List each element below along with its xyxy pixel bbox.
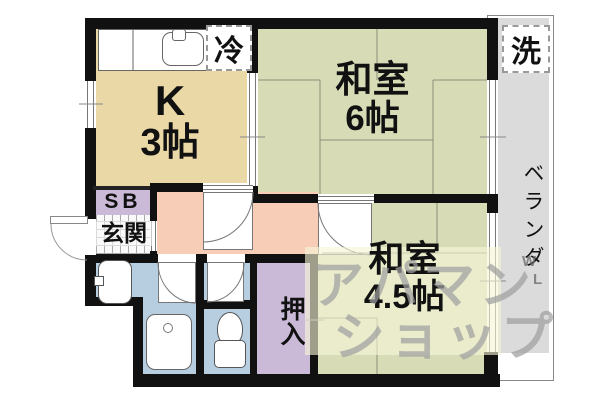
washitsu6-label: 和室 6帖	[275, 60, 470, 138]
floor-plan: 冷 洗	[0, 0, 600, 400]
faucet-icon	[172, 29, 186, 41]
fusuma-kitchen6	[247, 73, 258, 186]
washitsu6-name: 和室	[275, 60, 470, 100]
shoebox-label: SB	[96, 191, 150, 214]
entrance-door-leaf	[50, 216, 88, 224]
wall-left-2	[85, 128, 96, 220]
opening-6-to-45	[318, 194, 374, 203]
washer-label: 洗	[511, 27, 541, 71]
wall-6-bottom-a	[258, 194, 318, 203]
watermark-line2: ショップ	[333, 295, 557, 370]
entrance-door-arc	[51, 224, 87, 260]
refrigerator-label: 冷	[214, 26, 244, 70]
door-hall	[203, 192, 253, 250]
wall-toilet-oshiire	[250, 254, 257, 374]
kitchen-label-size: 3帖	[100, 123, 240, 164]
washer-box: 洗	[502, 25, 550, 73]
wall-6-bottom-b	[374, 194, 498, 203]
kitchen-label-k: K	[100, 78, 240, 123]
window-kitchen-left	[85, 81, 96, 128]
kitchen-label: K 3帖	[100, 78, 240, 164]
outside-notch	[85, 306, 133, 376]
wall-bottom	[133, 374, 500, 387]
wall-kitchen-bottom-a	[150, 183, 203, 192]
bathtub-drain	[163, 323, 173, 333]
wall-notch-v	[133, 297, 143, 382]
toilet-tank	[214, 340, 246, 368]
wall-top	[85, 18, 497, 29]
oshiire-label: 押入	[270, 281, 304, 361]
washbasin-tap	[94, 276, 104, 286]
washitsu6-size: 6帖	[275, 100, 470, 138]
opening-kitchen-hall	[203, 183, 253, 192]
wall-wash-toilet-div	[196, 254, 204, 374]
wall-right-1	[487, 18, 498, 80]
watermark-l: L	[533, 271, 542, 288]
balcony-window-6	[487, 80, 498, 194]
watermark-w: W	[522, 253, 536, 270]
entrance-doorway	[85, 219, 96, 255]
refrigerator-box: 冷	[206, 25, 252, 71]
door-washroom	[158, 262, 196, 303]
door-toilet	[207, 262, 244, 302]
entrance-label: 玄関	[96, 221, 152, 246]
wall-left-1	[85, 18, 96, 81]
